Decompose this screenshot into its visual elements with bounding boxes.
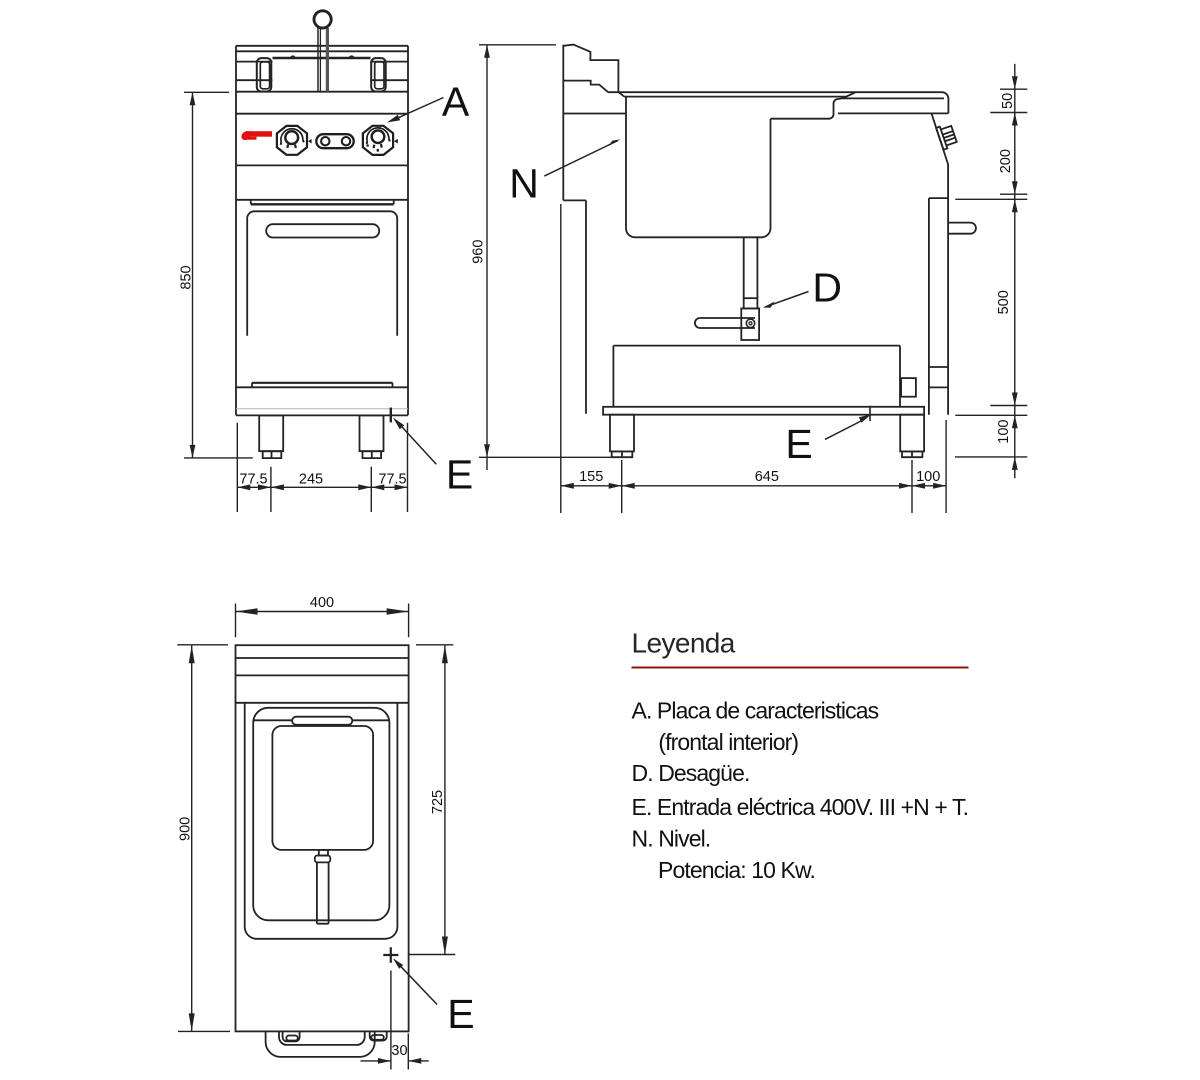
svg-text:200: 200: [998, 149, 1014, 173]
svg-text:E. Entrada eléctrica 400V. III: E. Entrada eléctrica 400V. III +N + T.: [632, 794, 969, 820]
svg-text:A. Placa de caracteristicas: A. Placa de caracteristicas: [632, 697, 879, 723]
svg-text:Leyenda: Leyenda: [632, 628, 736, 659]
svg-text:30: 30: [391, 1043, 407, 1059]
svg-text:960: 960: [471, 240, 487, 264]
svg-text:500: 500: [996, 290, 1012, 314]
svg-text:245: 245: [299, 471, 323, 487]
svg-text:N: N: [509, 160, 539, 206]
svg-text:E: E: [447, 991, 474, 1037]
svg-text:77.5: 77.5: [378, 471, 406, 487]
svg-text:E: E: [446, 451, 473, 497]
svg-text:D: D: [812, 264, 842, 310]
svg-text:E: E: [785, 421, 812, 467]
svg-text:155: 155: [579, 469, 603, 485]
svg-text:645: 645: [755, 469, 779, 485]
svg-text:Potencia: 10 Kw.: Potencia: 10 Kw.: [658, 857, 815, 883]
svg-text:725: 725: [430, 790, 446, 814]
svg-text:A: A: [442, 79, 470, 125]
svg-text:900: 900: [178, 817, 194, 841]
svg-text:850: 850: [178, 265, 194, 289]
svg-text:100: 100: [996, 419, 1012, 443]
svg-text:N. Nivel.: N. Nivel.: [632, 826, 711, 852]
svg-text:(frontal interior): (frontal interior): [658, 729, 798, 755]
svg-text:100: 100: [916, 469, 940, 485]
svg-text:400: 400: [310, 595, 334, 611]
svg-text:D. Desagüe.: D. Desagüe.: [632, 760, 750, 786]
svg-text:77.5: 77.5: [239, 471, 267, 487]
svg-text:50: 50: [1000, 93, 1016, 109]
